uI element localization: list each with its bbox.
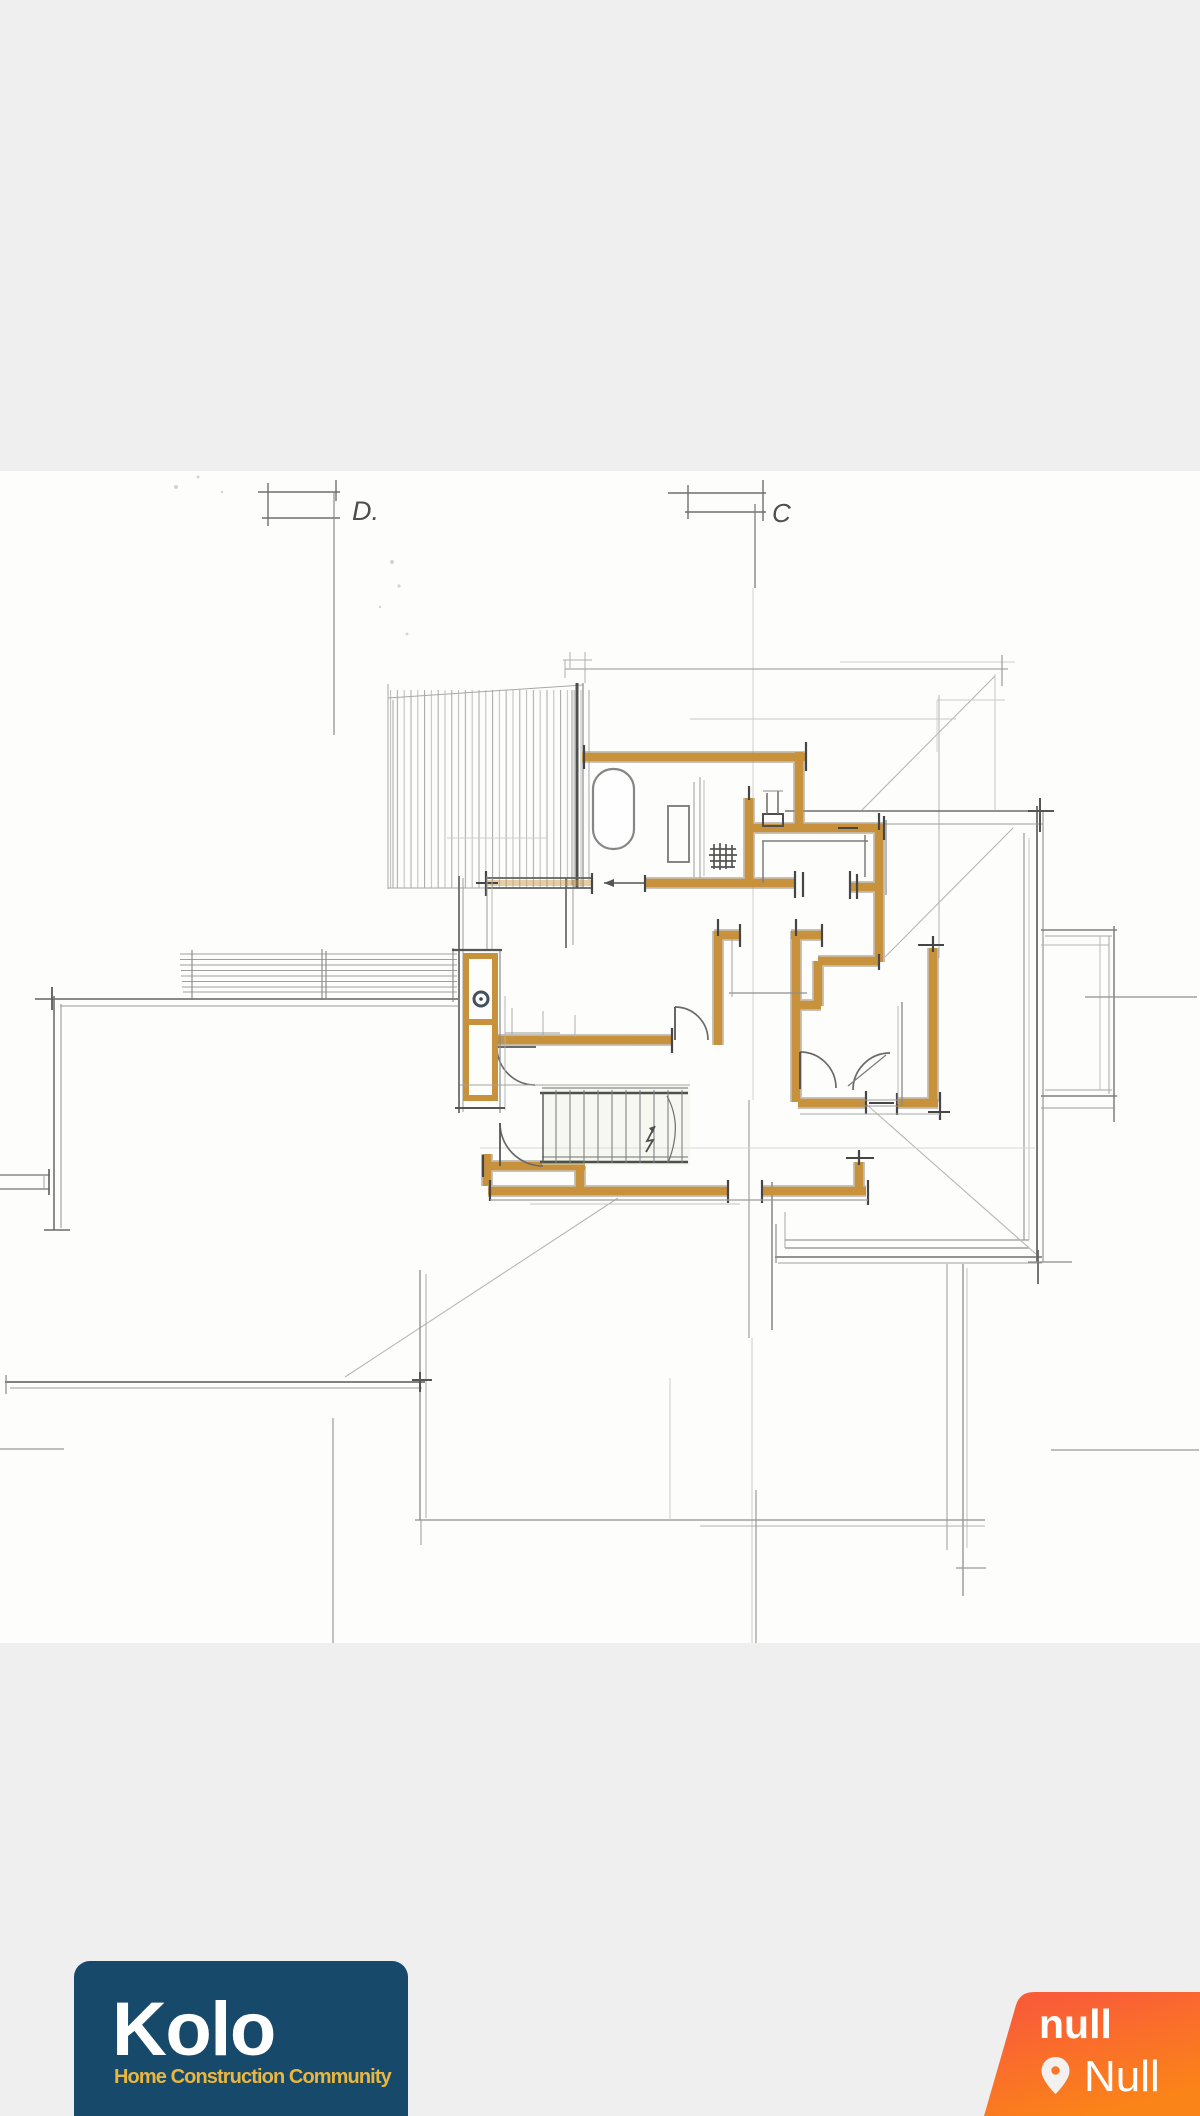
svg-text:C: C bbox=[772, 498, 791, 528]
svg-text:D.: D. bbox=[352, 496, 379, 526]
